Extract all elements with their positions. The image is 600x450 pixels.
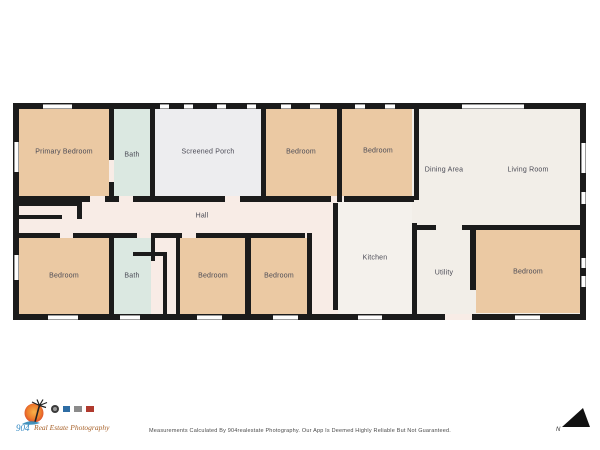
window [43, 104, 72, 109]
floorplan-page: Primary Bedroom Bath Screened Porch Bedr… [0, 0, 600, 450]
window [515, 315, 540, 320]
badge-gray [74, 406, 82, 412]
room-label-primary-bedroom: Primary Bedroom [35, 149, 92, 156]
wall-segment [19, 233, 60, 238]
wall-segment [412, 223, 417, 314]
wall-segment [580, 103, 586, 320]
wall-segment [150, 109, 155, 202]
room-label-bath-top: Bath [124, 152, 139, 159]
window [581, 276, 586, 287]
room-label-bedroom-left: Bedroom [49, 273, 79, 280]
badge-red [86, 406, 94, 412]
room-label-kitchen: Kitchen [363, 255, 388, 262]
wall-segment [13, 103, 19, 320]
north-arrow: N [556, 404, 592, 437]
wall-segment [19, 215, 62, 219]
room-label-bedroom-bottom-1: Bedroom [198, 273, 228, 280]
wall-segment [462, 225, 580, 230]
room-label-utility: Utility [435, 270, 454, 277]
window [281, 104, 291, 109]
window [273, 315, 298, 320]
measurement-disclaimer: Measurements Calculated By 904realestate… [0, 428, 600, 434]
window [358, 315, 382, 320]
wall-segment [114, 233, 137, 238]
room-label-bedroom-bottom-2: Bedroom [264, 273, 294, 280]
room-label-bedroom-right: Bedroom [513, 269, 543, 276]
room-label-bath-bottom: Bath [124, 273, 139, 280]
north-arrow-icon [562, 408, 590, 427]
wall-segment [333, 203, 338, 310]
room-label-dining-area: Dining Area [425, 167, 463, 174]
photography-logo: 904 Real Estate Photography [14, 398, 110, 441]
wall-segment [415, 225, 436, 230]
window [197, 315, 222, 320]
window [14, 255, 19, 280]
window [355, 104, 365, 109]
window [581, 192, 586, 204]
room-label-living-room: Living Room [507, 167, 548, 174]
wall-segment [414, 109, 419, 200]
wall-segment [470, 230, 476, 290]
wall-segment [344, 196, 414, 202]
window [247, 104, 256, 109]
window [184, 104, 193, 109]
wall-segment [133, 252, 167, 256]
window [120, 315, 140, 320]
window [385, 104, 395, 109]
room-label-bedroom-top-2: Bedroom [363, 148, 393, 155]
room-label-screened-porch: Screened Porch [182, 149, 235, 156]
wall-segment [240, 196, 331, 202]
window [462, 104, 524, 109]
window [48, 315, 78, 320]
window [217, 104, 226, 109]
wall-segment [105, 196, 119, 202]
wall-segment [77, 202, 82, 219]
north-label: N [556, 427, 561, 432]
wall-segment [337, 109, 342, 202]
room-label-bedroom-top-1: Bedroom [286, 149, 316, 156]
window [581, 258, 586, 268]
wall-segment [19, 202, 82, 206]
wall-segment [133, 196, 225, 202]
room-label-hall: Hall [196, 213, 209, 220]
badge-blue [63, 406, 70, 412]
floorplan: Primary Bedroom Bath Screened Porch Bedr… [13, 103, 586, 320]
wall-segment [261, 109, 266, 202]
window [14, 142, 19, 172]
wall-segment [245, 233, 251, 314]
wall-segment [109, 233, 114, 314]
window [581, 143, 586, 173]
window [310, 104, 320, 109]
wall-segment [73, 233, 109, 238]
wall-segment [307, 233, 312, 314]
wall-segment [109, 109, 114, 160]
wall-segment [176, 233, 180, 314]
wall-segment [151, 238, 155, 261]
wall-segment [163, 255, 167, 314]
window [160, 104, 169, 109]
